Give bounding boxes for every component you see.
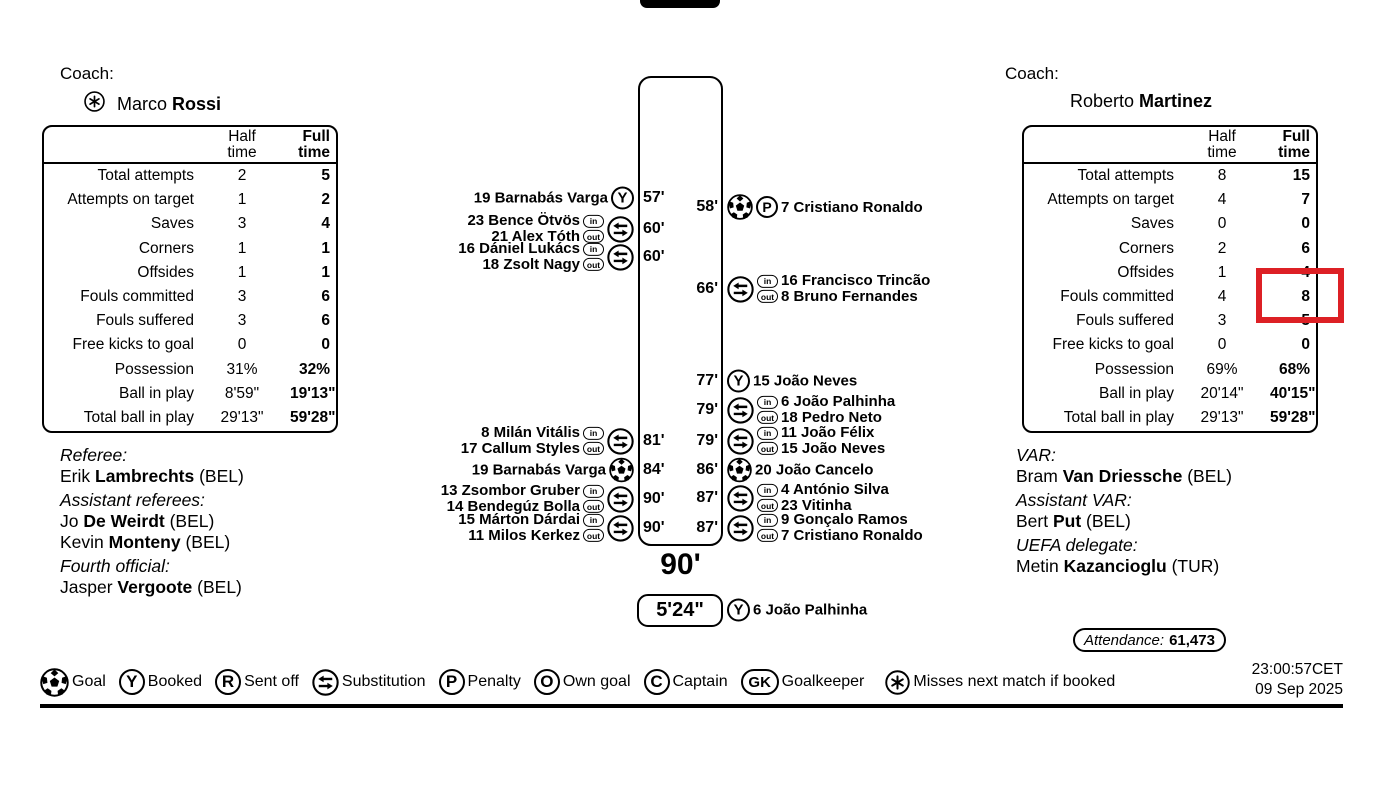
stat-half-value: 0 xyxy=(194,336,290,354)
stats-row: Ball in play 20'14" 40'15" xyxy=(1024,382,1316,406)
bottom-rule xyxy=(40,704,1343,708)
minute-label: 79' xyxy=(696,401,718,419)
official-name: Bert Put (BEL) xyxy=(1016,511,1232,532)
player-name: 4 António Silva xyxy=(781,483,889,498)
stat-label: Total ball in play xyxy=(46,409,194,427)
away-event: 20 João Cancelo xyxy=(727,458,873,483)
sub-in-badge: in xyxy=(583,243,604,256)
misses-if-booked-icon xyxy=(84,91,105,117)
sub-in-badge: in xyxy=(583,514,604,527)
goalkeeper-icon: GK xyxy=(741,669,779,695)
stats-row: Possession 69% 68% xyxy=(1024,358,1316,382)
stat-full-value: 4 xyxy=(290,215,330,233)
stat-half-value: 3 xyxy=(194,215,290,233)
legend-item-captain: CCaptain xyxy=(644,669,728,695)
official-role: Referee: xyxy=(60,445,244,466)
stats-row: Saves 0 0 xyxy=(1024,212,1316,236)
stoppage-time-box: 5'24" xyxy=(637,594,723,627)
stats-row: Saves 3 4 xyxy=(44,212,336,236)
stat-half-value: 29'13" xyxy=(194,409,290,427)
stat-label: Fouls committed xyxy=(1026,288,1174,306)
sub-out-badge: out xyxy=(757,499,778,512)
misses-if-booked-icon xyxy=(84,91,105,112)
home-officials-block: Referee:Erik Lambrechts (BEL)Assistant r… xyxy=(60,442,244,598)
attendance-label: Attendance: xyxy=(1084,632,1164,649)
sub-in-badge: in xyxy=(757,427,778,440)
stat-half-value: 0 xyxy=(1174,215,1270,233)
stats-row: Total attempts 2 5 xyxy=(44,164,336,188)
stat-full-value: 7 xyxy=(1270,191,1310,209)
stat-label: Fouls committed xyxy=(46,288,194,306)
stats-row: Attempts on target 1 2 xyxy=(44,188,336,212)
official-role: Fourth official: xyxy=(60,556,244,577)
stat-half-value: 1 xyxy=(194,240,290,258)
stat-label: Free kicks to goal xyxy=(1026,336,1174,354)
stat-half-value: 8'59" xyxy=(194,385,290,403)
sub-out-badge: out xyxy=(757,529,778,542)
stat-full-value: 59'28" xyxy=(1270,409,1316,427)
minute-label: 84' xyxy=(643,461,665,479)
sub-in-badge: in xyxy=(757,514,778,527)
sub-in-badge: in xyxy=(757,484,778,497)
home-event: 13 Zsombor Gruberin14 Bendegúz Bollaout xyxy=(441,484,634,514)
player-name: 7 Cristiano Ronaldo xyxy=(781,529,923,544)
legend-item-misses_next: Misses next match if booked xyxy=(885,670,1115,695)
own_goal-icon: O xyxy=(534,669,560,695)
official-name: Metin Kazancioglu (TUR) xyxy=(1016,556,1232,577)
home-event: 8 Milán Vitálisin17 Callum Stylesout xyxy=(461,426,634,456)
stat-label: Possession xyxy=(46,361,194,379)
substitution-icon xyxy=(607,244,634,271)
stat-full-value: 0 xyxy=(1270,215,1310,233)
stats-row: Attempts on target 4 7 xyxy=(1024,188,1316,212)
stat-label: Attempts on target xyxy=(1026,191,1174,209)
away-event: in16 Francisco Trincãoout8 Bruno Fernand… xyxy=(727,274,930,304)
home-event: 16 Dániel Lukácsin18 Zsolt Nagyout xyxy=(458,242,634,272)
timestamp-time: 23:00:57CET xyxy=(1252,660,1343,680)
home-event: 15 Márton Dárdaiin11 Milos Kerkezout xyxy=(458,513,634,543)
minute-label: 60' xyxy=(643,220,665,238)
official-role: Assistant VAR: xyxy=(1016,490,1232,511)
official-role: Assistant referees: xyxy=(60,490,244,511)
substitution-icon xyxy=(607,515,634,542)
player-name: 16 Francisco Trincão xyxy=(781,274,930,289)
sub-out-badge: out xyxy=(757,411,778,424)
stat-full-value: 6 xyxy=(290,288,330,306)
player-name: 13 Zsombor Gruber xyxy=(441,484,580,499)
sub-in-badge: in xyxy=(757,396,778,409)
substitution-icon xyxy=(727,515,754,542)
legend-label: Goalkeeper xyxy=(782,673,865,691)
stat-full-value: 15 xyxy=(1270,167,1310,185)
stat-label: Total attempts xyxy=(1026,167,1174,185)
player-name: 18 Zsolt Nagy xyxy=(482,258,580,273)
substitution-icon xyxy=(727,428,754,455)
sent_off-icon: R xyxy=(215,669,241,695)
substitution-icon xyxy=(312,669,339,696)
official-role: VAR: xyxy=(1016,445,1232,466)
legend-item-substitution: Substitution xyxy=(312,669,426,696)
minute-label: 57' xyxy=(643,189,665,207)
stats-row: Free kicks to goal 0 0 xyxy=(44,333,336,357)
match-report-page: Coach: Marco Rossi Coach: Roberto Martin… xyxy=(0,0,1373,803)
yellow-card-icon: Y xyxy=(727,370,750,393)
legend-row: GoalYBookedRSent offSubstitutionPPenalty… xyxy=(40,666,1115,698)
away-event: P7 Cristiano Ronaldo xyxy=(727,194,923,220)
stat-label: Attempts on target xyxy=(46,191,194,209)
minute-label: 87' xyxy=(696,489,718,507)
sub-in-badge: in xyxy=(583,427,604,440)
minute-label: 90' xyxy=(643,490,665,508)
stat-full-value: 68% xyxy=(1270,361,1310,379)
away-coach-label: Coach: xyxy=(1005,64,1212,84)
away-event: in11 João Félixout15 João Neves xyxy=(727,426,885,456)
stat-half-value: 4 xyxy=(1174,191,1270,209)
stats-row: Corners 1 1 xyxy=(44,237,336,261)
sub-out-badge: out xyxy=(757,442,778,455)
legend-item-booked: YBooked xyxy=(119,669,202,695)
official-name: Kevin Monteny (BEL) xyxy=(60,532,244,553)
captain-icon: C xyxy=(644,669,670,695)
stats-row: Free kicks to goal 0 0 xyxy=(1024,333,1316,357)
player-name: 11 Milos Kerkez xyxy=(468,529,580,544)
legend-item-penalty: PPenalty xyxy=(439,669,521,695)
official-name: Erik Lambrechts (BEL) xyxy=(60,466,244,487)
substitution-icon xyxy=(727,485,754,512)
substitution-icon xyxy=(727,276,754,303)
stat-half-value: 2 xyxy=(1174,240,1270,258)
stat-label: Possession xyxy=(1026,361,1174,379)
sub-out-badge: out xyxy=(583,500,604,513)
home-event: 19 Barnabás VargaY xyxy=(474,187,634,210)
stat-label: Ball in play xyxy=(1026,385,1174,403)
top-cutoff-score-box xyxy=(640,0,720,8)
stat-label: Fouls suffered xyxy=(46,312,194,330)
stat-label: Saves xyxy=(1026,215,1174,233)
stat-label: Ball in play xyxy=(46,385,194,403)
stats-row: Fouls committed 3 6 xyxy=(44,285,336,309)
stat-label: Total ball in play xyxy=(1026,409,1174,427)
soccer-ball-icon xyxy=(40,668,69,697)
minute-label: 79' xyxy=(696,432,718,450)
player-name: 23 Bence Ötvös xyxy=(467,214,580,229)
half-time-header: Halftime xyxy=(1174,129,1270,161)
stat-label: Offsides xyxy=(46,264,194,282)
stats-row: Corners 2 6 xyxy=(1024,237,1316,261)
away-coach-block: Coach: Roberto Martinez xyxy=(1005,64,1212,112)
legend-label: Goal xyxy=(72,673,106,691)
substitution-icon xyxy=(607,428,634,455)
minute-label: 66' xyxy=(696,280,718,298)
home-coach-block: Coach: Marco Rossi xyxy=(60,64,221,117)
stat-full-value: 0 xyxy=(290,336,330,354)
stat-full-value: 19'13" xyxy=(290,385,336,403)
legend-item-own_goal: OOwn goal xyxy=(534,669,631,695)
soccer-ball-icon xyxy=(727,194,753,220)
stats-row: Total ball in play 29'13" 59'28" xyxy=(44,406,336,430)
stats-row: Offsides 1 1 xyxy=(44,261,336,285)
stat-half-value: 3 xyxy=(194,288,290,306)
stat-half-value: 31% xyxy=(194,361,290,379)
player-name: 15 João Neves xyxy=(781,442,885,457)
home-coach-label: Coach: xyxy=(60,64,221,84)
player-name: 17 Callum Styles xyxy=(461,442,580,457)
legend-item-goalkeeper: GKGoalkeeper xyxy=(741,669,865,695)
stat-full-value: 40'15" xyxy=(1270,385,1316,403)
player-name: 11 João Félix xyxy=(781,426,874,441)
stat-label: Corners xyxy=(1026,240,1174,258)
stat-full-value: 32% xyxy=(290,361,330,379)
stats-header: Halftime Fulltime xyxy=(1024,127,1316,164)
stats-row: Total ball in play 29'13" 59'28" xyxy=(1024,406,1316,430)
stat-half-value: 1 xyxy=(194,264,290,282)
yellow-card-icon: Y xyxy=(727,599,750,622)
stat-full-value: 59'28" xyxy=(290,409,336,427)
attendance-value: 61,473 xyxy=(1169,632,1215,649)
sub-in-badge: in xyxy=(583,485,604,498)
official-role: UEFA delegate: xyxy=(1016,535,1232,556)
player-name: 16 Dániel Lukács xyxy=(458,242,580,257)
player-name: 7 Cristiano Ronaldo xyxy=(781,199,923,216)
minute-label: 87' xyxy=(696,519,718,537)
stat-label: Free kicks to goal xyxy=(46,336,194,354)
home-stats-table: Halftime Fulltime Total attempts 2 5 Att… xyxy=(42,125,338,433)
official-name: Jasper Vergoote (BEL) xyxy=(60,577,244,598)
stat-half-value: 0 xyxy=(1174,336,1270,354)
substitution-icon xyxy=(607,486,634,513)
minute-label: 58' xyxy=(696,198,718,216)
substitution-icon xyxy=(727,397,754,424)
player-name: 20 João Cancelo xyxy=(755,462,873,479)
report-timestamp: 23:00:57CET 09 Sep 2025 xyxy=(1252,660,1343,700)
sub-in-badge: in xyxy=(583,215,604,228)
legend-label: Captain xyxy=(673,673,728,691)
stats-header: Halftime Fulltime xyxy=(44,127,336,164)
home-coach-name: Marco Rossi xyxy=(117,94,221,115)
stat-half-value: 2 xyxy=(194,167,290,185)
home-event: 19 Barnabás Varga xyxy=(472,458,634,483)
stat-full-value: 1 xyxy=(290,240,330,258)
player-name: 6 João Palhinha xyxy=(753,602,867,619)
player-name: 19 Barnabás Varga xyxy=(474,190,608,207)
sub-out-badge: out xyxy=(757,290,778,303)
away-officials-block: VAR:Bram Van Driessche (BEL)Assistant VA… xyxy=(1016,442,1232,577)
legend-label: Penalty xyxy=(468,673,521,691)
stat-full-value: 5 xyxy=(290,167,330,185)
minute-label: 60' xyxy=(643,248,665,266)
away-event: in4 António Silvaout23 Vitinha xyxy=(727,483,889,513)
stat-half-value: 69% xyxy=(1174,361,1270,379)
booked-icon: Y xyxy=(119,669,145,695)
player-name: 18 Pedro Neto xyxy=(781,411,882,426)
legend-label: Sent off xyxy=(244,673,299,691)
stat-half-value: 8 xyxy=(1174,167,1270,185)
full-time-header: Fulltime xyxy=(290,129,330,161)
player-name: 15 João Neves xyxy=(753,373,857,390)
legend-item-sent_off: RSent off xyxy=(215,669,299,695)
misses-if-booked-icon xyxy=(885,670,910,695)
stat-label: Offsides xyxy=(1026,264,1174,282)
full-time-header: Fulltime xyxy=(1270,129,1310,161)
soccer-ball-icon xyxy=(727,458,752,483)
stat-half-value: 20'14" xyxy=(1174,385,1270,403)
stat-label: Corners xyxy=(46,240,194,258)
timestamp-date: 09 Sep 2025 xyxy=(1252,680,1343,700)
legend-label: Own goal xyxy=(563,673,631,691)
away-coach-name: Roberto Martinez xyxy=(1070,91,1212,112)
player-name: 8 Bruno Fernandes xyxy=(781,290,918,305)
minute-label: 77' xyxy=(696,372,718,390)
minute-label: 86' xyxy=(696,461,718,479)
away-event: in9 Gonçalo Ramosout7 Cristiano Ronaldo xyxy=(727,513,923,543)
player-name: 15 Márton Dárdai xyxy=(458,513,580,528)
stat-label: Fouls suffered xyxy=(1026,312,1174,330)
stat-full-value: 6 xyxy=(290,312,330,330)
stats-row: Ball in play 8'59" 19'13" xyxy=(44,382,336,406)
sub-out-badge: out xyxy=(583,442,604,455)
stat-half-value: 29'13" xyxy=(1174,409,1270,427)
official-name: Bram Van Driessche (BEL) xyxy=(1016,466,1232,487)
stat-half-value: 1 xyxy=(194,191,290,209)
legend-item-goal: Goal xyxy=(40,668,106,697)
sub-in-badge: in xyxy=(757,275,778,288)
sub-out-badge: out xyxy=(583,258,604,271)
stat-half-value: 3 xyxy=(194,312,290,330)
annotation-red-box xyxy=(1256,268,1344,323)
official-name: Jo De Weirdt (BEL) xyxy=(60,511,244,532)
soccer-ball-icon xyxy=(609,458,634,483)
yellow-card-icon: Y xyxy=(611,187,634,210)
penalty-icon: P xyxy=(756,196,778,218)
away-event: Y15 João Neves xyxy=(727,370,857,393)
legend-label: Misses next match if booked xyxy=(913,673,1115,691)
player-name: 8 Milán Vitális xyxy=(481,426,580,441)
attendance-box: Attendance: 61,473 xyxy=(1073,628,1226,652)
player-name: 19 Barnabás Varga xyxy=(472,462,606,479)
player-name: 6 João Palhinha xyxy=(781,395,895,410)
full-time-label: 90' xyxy=(638,548,723,582)
stat-full-value: 1 xyxy=(290,264,330,282)
half-time-header: Halftime xyxy=(194,129,290,161)
stoppage-event: Y6 João Palhinha xyxy=(727,599,867,622)
stats-row: Possession 31% 32% xyxy=(44,358,336,382)
stat-full-value: 0 xyxy=(1270,336,1310,354)
minute-label: 90' xyxy=(643,519,665,537)
minute-label: 81' xyxy=(643,432,665,450)
stat-full-value: 2 xyxy=(290,191,330,209)
stat-label: Total attempts xyxy=(46,167,194,185)
stats-row: Total attempts 8 15 xyxy=(1024,164,1316,188)
player-name: 9 Gonçalo Ramos xyxy=(781,513,908,528)
away-event: in6 João Palhinhaout18 Pedro Neto xyxy=(727,395,895,425)
stat-label: Saves xyxy=(46,215,194,233)
sub-out-badge: out xyxy=(583,529,604,542)
stat-full-value: 6 xyxy=(1270,240,1310,258)
substitution-icon xyxy=(607,216,634,243)
stats-row: Fouls suffered 3 6 xyxy=(44,309,336,333)
legend-label: Substitution xyxy=(342,673,426,691)
penalty-icon: P xyxy=(439,669,465,695)
legend-label: Booked xyxy=(148,673,202,691)
